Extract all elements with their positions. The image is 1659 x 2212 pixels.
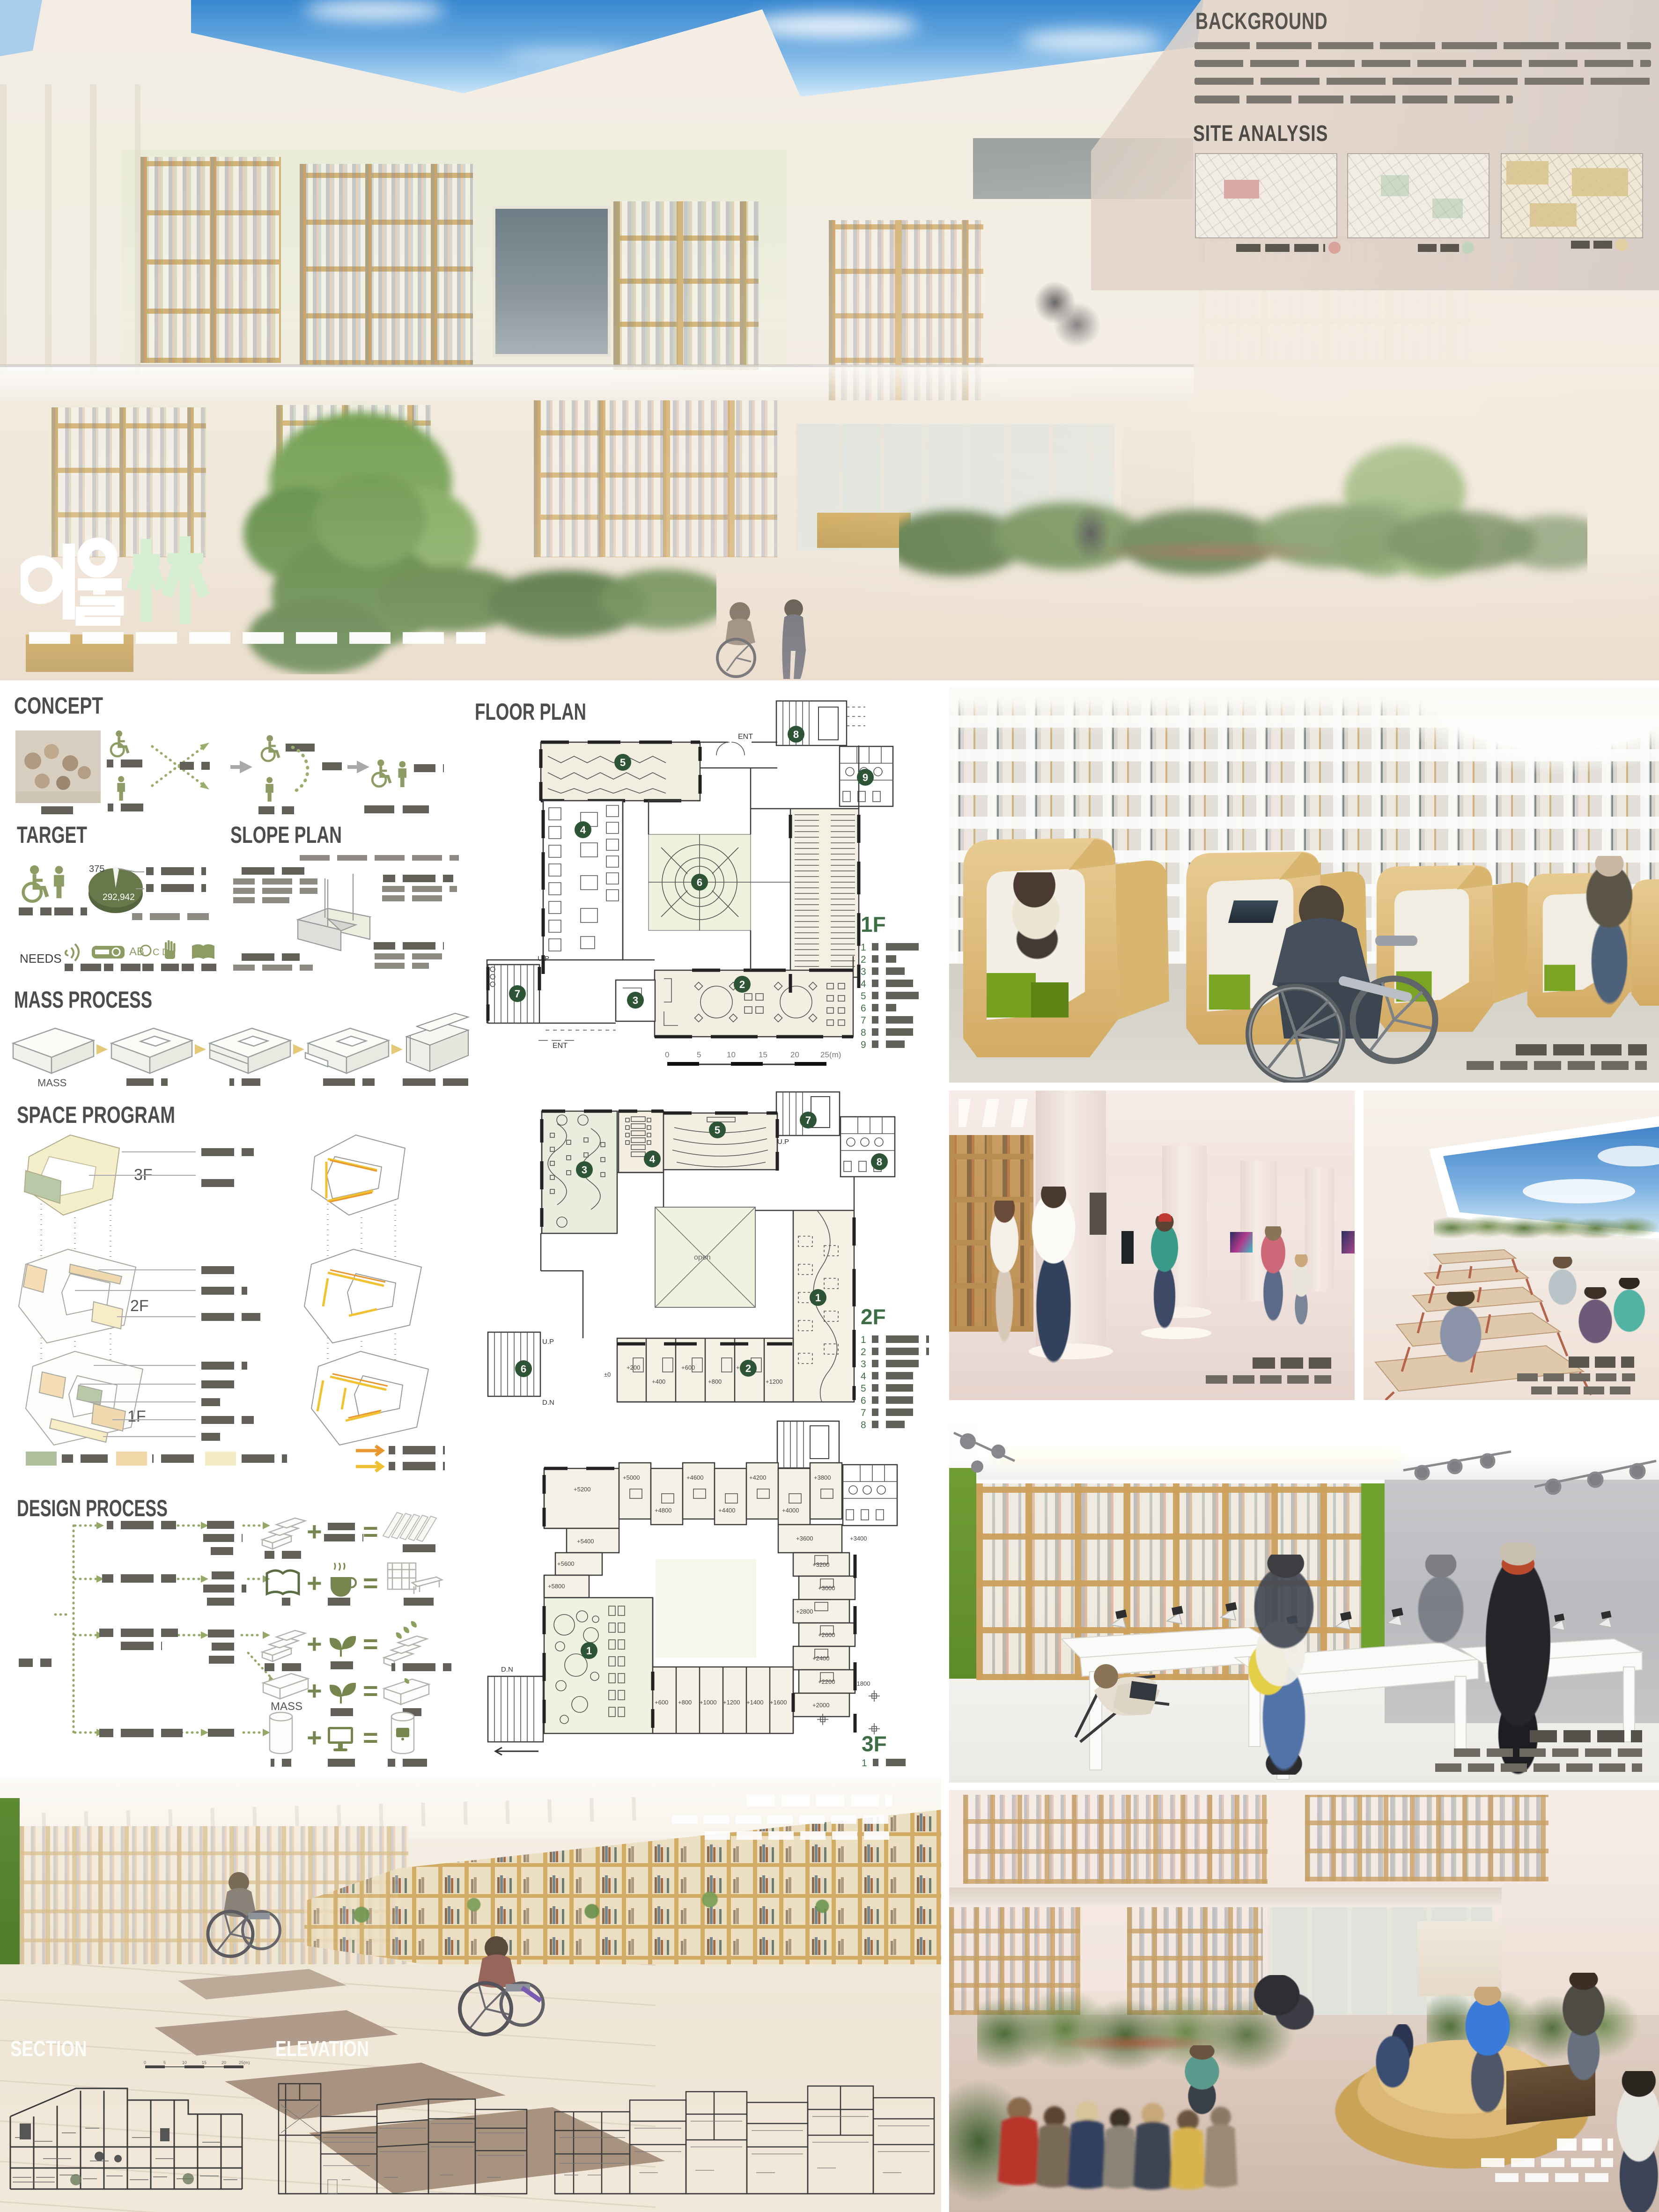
svg-text:2F: 2F bbox=[130, 1297, 149, 1315]
svg-text:7: 7 bbox=[861, 1015, 866, 1026]
svg-text:20: 20 bbox=[790, 1050, 799, 1059]
svg-text:292,942: 292,942 bbox=[103, 892, 135, 902]
svg-text:3: 3 bbox=[861, 1359, 866, 1370]
svg-text:+600: +600 bbox=[681, 1364, 695, 1371]
svg-text:+: + bbox=[307, 1629, 322, 1659]
svg-text:CONCEPT: CONCEPT bbox=[14, 693, 103, 719]
svg-text:+: + bbox=[307, 1676, 322, 1705]
svg-text:+5400: +5400 bbox=[577, 1538, 594, 1545]
svg-text:D.N: D.N bbox=[542, 1399, 554, 1407]
svg-text:+600: +600 bbox=[655, 1699, 668, 1706]
svg-text:+2800: +2800 bbox=[796, 1608, 813, 1615]
svg-text:3: 3 bbox=[582, 1164, 587, 1176]
svg-text:4: 4 bbox=[580, 824, 586, 836]
svg-text:+5800: +5800 bbox=[548, 1583, 565, 1590]
svg-text:+5000: +5000 bbox=[623, 1474, 640, 1481]
svg-text:25(m): 25(m) bbox=[239, 2060, 250, 2065]
svg-text:+2000: +2000 bbox=[812, 1702, 830, 1709]
svg-text:=: = bbox=[363, 1568, 378, 1598]
svg-text:3: 3 bbox=[861, 966, 866, 977]
svg-text:8: 8 bbox=[877, 1156, 882, 1168]
svg-text:5: 5 bbox=[163, 2060, 166, 2065]
svg-text:5: 5 bbox=[697, 1050, 701, 1059]
svg-text:0: 0 bbox=[144, 2060, 146, 2065]
svg-text:1: 1 bbox=[862, 1758, 867, 1769]
svg-text:1: 1 bbox=[861, 942, 866, 953]
svg-text:0: 0 bbox=[665, 1050, 669, 1059]
svg-text:U.P: U.P bbox=[777, 1138, 789, 1146]
svg-text:TARGET: TARGET bbox=[17, 822, 87, 848]
svg-text:+1200: +1200 bbox=[766, 1378, 783, 1385]
svg-text:+200: +200 bbox=[627, 1364, 640, 1371]
svg-text:+3600: +3600 bbox=[796, 1535, 813, 1542]
svg-text:2: 2 bbox=[861, 954, 866, 965]
svg-text:6: 6 bbox=[861, 1395, 866, 1406]
svg-text:8: 8 bbox=[861, 1420, 866, 1430]
svg-text:ENT: ENT bbox=[553, 1042, 568, 1050]
svg-text:10: 10 bbox=[727, 1050, 736, 1059]
svg-text:+: + bbox=[307, 1723, 322, 1752]
svg-text:10: 10 bbox=[182, 2060, 187, 2065]
svg-text:MASS: MASS bbox=[37, 1077, 66, 1089]
svg-text:7: 7 bbox=[805, 1114, 811, 1126]
svg-text:+: + bbox=[307, 1517, 322, 1546]
svg-text:8: 8 bbox=[861, 1027, 866, 1038]
svg-text:7: 7 bbox=[515, 988, 520, 1000]
svg-text:MASS PROCESS: MASS PROCESS bbox=[14, 987, 152, 1013]
svg-text:4: 4 bbox=[649, 1153, 656, 1165]
svg-text:ENT: ENT bbox=[738, 733, 753, 741]
svg-text:U.P: U.P bbox=[542, 1338, 554, 1346]
svg-text:+1200: +1200 bbox=[723, 1699, 740, 1706]
svg-text:1: 1 bbox=[815, 1292, 821, 1304]
svg-text:±0: ±0 bbox=[604, 1371, 611, 1378]
svg-text:5: 5 bbox=[620, 757, 626, 768]
svg-text:25(m): 25(m) bbox=[820, 1050, 841, 1059]
svg-text:9: 9 bbox=[863, 772, 868, 783]
svg-text:SPACE PROGRAM: SPACE PROGRAM bbox=[17, 1102, 175, 1128]
svg-text:6: 6 bbox=[697, 877, 702, 888]
svg-text:+4400: +4400 bbox=[718, 1507, 736, 1514]
svg-text:20: 20 bbox=[221, 2060, 226, 2065]
svg-text:+4200: +4200 bbox=[749, 1474, 767, 1481]
svg-text:SLOPE PLAN: SLOPE PLAN bbox=[230, 822, 342, 848]
svg-text:15: 15 bbox=[202, 2060, 206, 2065]
svg-text:6: 6 bbox=[521, 1363, 526, 1375]
svg-text:+5200: +5200 bbox=[574, 1486, 591, 1493]
svg-text:=: = bbox=[363, 1517, 378, 1546]
svg-text:=: = bbox=[363, 1723, 378, 1752]
svg-text:4: 4 bbox=[861, 979, 866, 989]
svg-text:FLOOR PLAN: FLOOR PLAN bbox=[475, 699, 586, 725]
svg-text:1F: 1F bbox=[127, 1408, 146, 1425]
svg-text:+800: +800 bbox=[678, 1699, 692, 1706]
svg-text:+: + bbox=[307, 1568, 322, 1598]
svg-text:+4000: +4000 bbox=[782, 1507, 799, 1514]
svg-text:3: 3 bbox=[633, 995, 638, 1006]
svg-text:MASS: MASS bbox=[271, 1700, 302, 1713]
svg-text:+1400: +1400 bbox=[746, 1699, 764, 1706]
svg-text:8: 8 bbox=[793, 729, 799, 740]
svg-text:+5600: +5600 bbox=[557, 1560, 575, 1567]
svg-text:3F: 3F bbox=[862, 1732, 887, 1756]
svg-text:375: 375 bbox=[89, 864, 104, 874]
svg-text:4: 4 bbox=[861, 1371, 866, 1382]
svg-text:+3400: +3400 bbox=[850, 1535, 867, 1542]
svg-text:+400: +400 bbox=[652, 1378, 665, 1385]
svg-text:5: 5 bbox=[715, 1124, 720, 1136]
svg-text:1F: 1F bbox=[861, 912, 886, 936]
svg-text:2: 2 bbox=[861, 1347, 866, 1357]
svg-text:2: 2 bbox=[745, 1363, 751, 1374]
svg-text:+4600: +4600 bbox=[686, 1474, 704, 1481]
svg-text:NEEDS: NEEDS bbox=[20, 951, 62, 966]
svg-text:2: 2 bbox=[739, 979, 745, 990]
svg-text:7: 7 bbox=[861, 1408, 866, 1418]
svg-text:+1000: +1000 bbox=[700, 1699, 717, 1706]
svg-text:1: 1 bbox=[861, 1335, 866, 1345]
svg-text:5: 5 bbox=[861, 1383, 866, 1394]
svg-text:5: 5 bbox=[861, 991, 866, 1002]
svg-text:=: = bbox=[363, 1676, 378, 1705]
svg-text:2F: 2F bbox=[861, 1305, 886, 1329]
svg-text:DESIGN PROCESS: DESIGN PROCESS bbox=[17, 1495, 168, 1521]
svg-text:+800: +800 bbox=[708, 1378, 722, 1385]
svg-text:D.N: D.N bbox=[501, 1666, 513, 1674]
svg-text:open: open bbox=[694, 1253, 711, 1261]
svg-text:9: 9 bbox=[861, 1040, 866, 1050]
svg-text:=: = bbox=[363, 1629, 378, 1659]
svg-text:+3800: +3800 bbox=[814, 1474, 831, 1481]
svg-text:1: 1 bbox=[586, 1645, 592, 1657]
svg-text:+4800: +4800 bbox=[655, 1507, 672, 1514]
svg-text:6: 6 bbox=[861, 1003, 866, 1014]
svg-text:15: 15 bbox=[759, 1050, 767, 1059]
svg-text:+1600: +1600 bbox=[770, 1699, 787, 1706]
